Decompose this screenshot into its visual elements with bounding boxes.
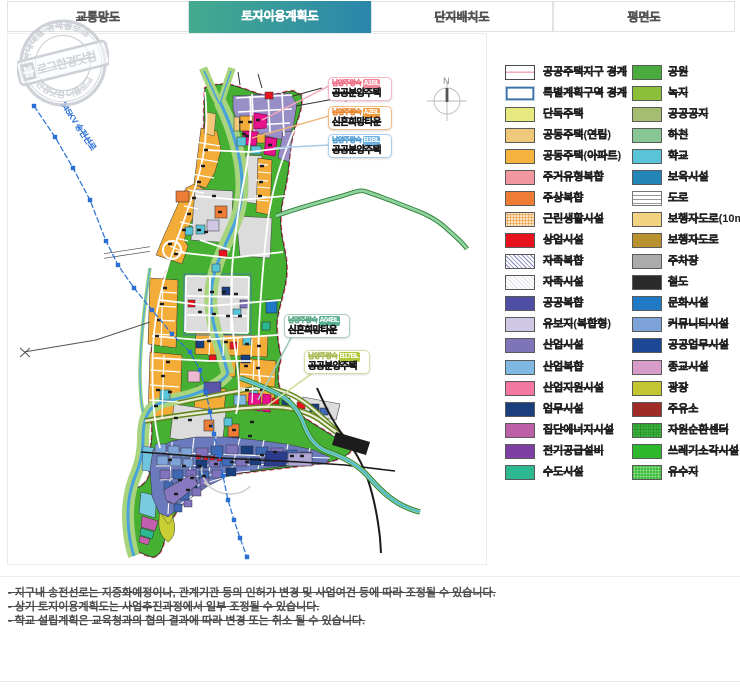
svg-text:N: N: [443, 76, 450, 86]
